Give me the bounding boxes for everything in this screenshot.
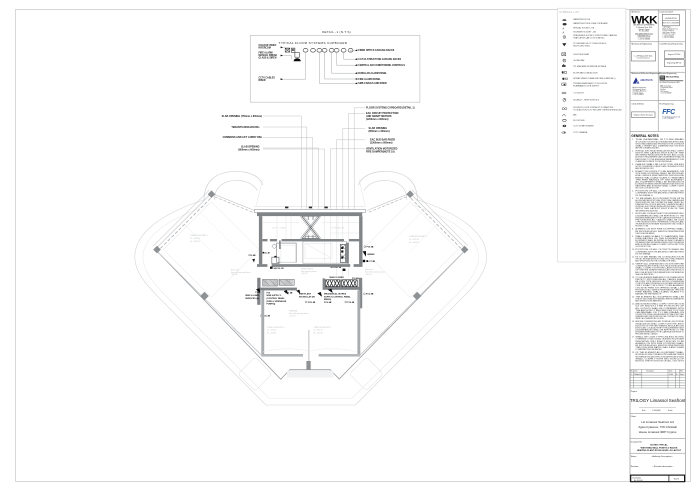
svg-text:CAT 6A STRUCTURE CABLING RACKS: CAT 6A STRUCTURE CABLING RACKS bbox=[358, 58, 401, 61]
svg-text:ROOMS LAY DB: ROOMS LAY DB bbox=[299, 295, 315, 298]
svg-text:RULTS URC GRILL: RULTS URC GRILL bbox=[573, 46, 591, 48]
svg-text:WATERTIGHT SUN CUBE CUPBOARD: WATERTIGHT SUN CUBE CUPBOARD bbox=[573, 22, 608, 25]
svg-text:A: A bbox=[563, 31, 565, 35]
svg-text:Architects: Architects bbox=[632, 11, 640, 14]
svg-text:CLARIFICATION PRIOR TO PROCEED: CLARIFICATION PRIOR TO PROCEEDING ALL bbox=[635, 160, 672, 163]
svg-text:Clerk of Works: Clerk of Works bbox=[632, 102, 644, 105]
svg-text:Mechanical Engineering: Mechanical Engineering bbox=[632, 43, 652, 46]
svg-text:L I F T L O B B Y: L I F T L O B B Y bbox=[272, 227, 287, 229]
svg-text:(800mm x 600mm): (800mm x 600mm) bbox=[238, 148, 259, 151]
svg-text:FL +141.85: FL +141.85 bbox=[267, 332, 276, 334]
svg-text:No: No bbox=[631, 371, 633, 373]
svg-text:1 BED ROOM UNIT 2: 1 BED ROOM UNIT 2 bbox=[314, 327, 331, 329]
svg-text:Size: Size bbox=[642, 410, 646, 412]
svg-text:WATERPROOF DB: WATERPROOF DB bbox=[573, 18, 591, 21]
svg-text:BEFORE COMMENCING ANY: BEFORE COMMENCING ANY bbox=[635, 147, 659, 150]
svg-text:(CONTROL PANEL: (CONTROL PANEL bbox=[267, 297, 286, 300]
svg-text:Mechanical & Electrical Engine: Mechanical & Electrical Engineering bbox=[632, 72, 660, 75]
svg-text:Agiou Fylaxeos, 7/W Christaki: Agiou Fylaxeos, 7/W Christaki bbox=[638, 425, 677, 429]
svg-text:J+A PHILIPPOU: J+A PHILIPPOU bbox=[665, 17, 678, 20]
svg-text:TPI SPACEME WORKRISE MODERE: TPI SPACEME WORKRISE MODERE bbox=[573, 65, 607, 68]
svg-text:ROUTES TO BE: ROUTES TO BE bbox=[635, 226, 649, 228]
svg-text:P10 4B: P10 4B bbox=[352, 277, 359, 280]
svg-text:1:100@A1: 1:100@A1 bbox=[652, 409, 661, 412]
svg-text:SHALL BE REPORTED: SHALL BE REPORTED bbox=[635, 273, 654, 276]
svg-text:Scale: Scale bbox=[669, 371, 673, 373]
svg-text:FLOOR SUB: FLOOR SUB bbox=[573, 120, 585, 122]
svg-text:MECHANICAL WORKS: MECHANICAL WORKS bbox=[324, 293, 347, 296]
svg-text:C O R R I D O R: C O R R I D O R bbox=[331, 227, 345, 229]
svg-text:GLASS & SIREN: GLASS & SIREN bbox=[259, 57, 277, 60]
svg-text:CL +141.50: CL +141.50 bbox=[267, 330, 276, 332]
svg-text:DETAIL -1 (N.T.S): DETAIL -1 (N.T.S) bbox=[322, 30, 351, 34]
svg-text:FCU 4B: FCU 4B bbox=[366, 293, 374, 296]
svg-text:FLAMMABLE DOOR SUPPLY: FLAMMABLE DOOR SUPPLY bbox=[573, 85, 600, 88]
svg-text:Lead Consultant: Lead Consultant bbox=[660, 11, 674, 14]
svg-text:FIX THE GENERAL IS: FIX THE GENERAL IS bbox=[635, 194, 653, 197]
svg-text:ECOPLEATS LINE-ACTION: ECOPLEATS LINE-ACTION bbox=[573, 71, 598, 74]
svg-text:INTERCOM: INTERCOM bbox=[259, 48, 271, 50]
svg-text:+141.50: +141.50 bbox=[231, 274, 238, 276]
svg-text:House Limassol 3087 Cyprus: House Limassol 3087 Cyprus bbox=[639, 430, 677, 434]
svg-text:P10 4B: P10 4B bbox=[367, 245, 374, 248]
svg-text:P.O. Box 50622: P.O. Box 50622 bbox=[639, 31, 649, 33]
svg-text:(850mm x 300mm): (850mm x 300mm) bbox=[369, 130, 390, 133]
svg-text:Limassol, Cyprus: Limassol, Cyprus bbox=[638, 29, 649, 31]
svg-text:Fire Engineering: Fire Engineering bbox=[660, 102, 674, 105]
svg-text:Limassol, Cyprus: Limassol, Cyprus bbox=[633, 92, 644, 94]
svg-text:SOUNDLY - HIGH SCHOOLS: SOUNDLY - HIGH SCHOOLS bbox=[573, 99, 599, 101]
svg-text:FL +141.85: FL +141.85 bbox=[314, 332, 323, 334]
svg-text:THROUGH FIRE RATED: THROUGH FIRE RATED bbox=[635, 232, 655, 235]
svg-text:1:100: 1:100 bbox=[669, 374, 673, 376]
svg-text:EL-41-104: EL-41-104 bbox=[634, 480, 642, 482]
svg-text:(1300mm x 800mm): (1300mm x 800mm) bbox=[370, 141, 393, 144]
svg-text:CL +141.50: CL +141.50 bbox=[409, 239, 419, 241]
svg-text:LH Limassol Seafront Ltd: LH Limassol Seafront Ltd bbox=[641, 420, 674, 424]
svg-text:Project:: Project: bbox=[631, 390, 638, 393]
svg-text:CENTRAL AIR CONDITIONING CONTR: CENTRAL AIR CONDITIONING CONTROLS bbox=[358, 64, 405, 67]
svg-text:WKK: WKK bbox=[631, 15, 658, 27]
svg-text:ARE INDICATIVE ONLY: ARE INDICATIVE ONLY bbox=[635, 167, 654, 170]
svg-text:Rev: Rev bbox=[680, 371, 683, 373]
svg-text:Drawing Title:: Drawing Title: bbox=[631, 440, 643, 443]
svg-text:SECTION 54 OF BS7671 THE: SECTION 54 OF BS7671 THE bbox=[635, 188, 659, 190]
svg-text:Scale: Scale bbox=[668, 410, 673, 412]
svg-text:CCTV DOME SCREEN: CCTV DOME SCREEN bbox=[573, 125, 594, 127]
svg-text:MSB SUPPLY 2: MSB SUPPLY 2 bbox=[267, 295, 283, 297]
svg-text:BURGLAR ALARM PANEL: BURGLAR ALARM PANEL bbox=[358, 72, 387, 75]
svg-text:P10 4B: P10 4B bbox=[286, 291, 293, 294]
svg-text:FIX THE GENERAL: FIX THE GENERAL bbox=[635, 252, 650, 255]
svg-text:TO INJECTION CCTV SECURITY SER: TO INJECTION CCTV SECURITY SERVICES MODU… bbox=[573, 109, 622, 111]
svg-text:FL +141.85: FL +141.85 bbox=[409, 242, 419, 244]
svg-text:AND SPECIFICATIONS THE CONTRAC: AND SPECIFICATIONS THE CONTRACTOR SHALL bbox=[635, 260, 676, 263]
svg-text:Revision:: Revision: bbox=[631, 466, 639, 468]
svg-text:1096 Nicosia, Cyprus: 1096 Nicosia, Cyprus bbox=[663, 34, 677, 36]
svg-text:FCU 4B: FCU 4B bbox=[308, 301, 316, 304]
svg-text:VERIFY ALL DIMENSIONS ON SITE: VERIFY ALL DIMENSIONS ON SITE bbox=[635, 317, 664, 320]
svg-text:LIGHT MODULAR: LIGHT MODULAR bbox=[573, 53, 589, 56]
svg-text:SD/COL FB: SD/COL FB bbox=[274, 268, 285, 270]
svg-text:(1200mm x 900mm): (1200mm x 900mm) bbox=[366, 118, 389, 121]
svg-text:1 BED ROOM UNIT 1: 1 BED ROOM UNIT 1 bbox=[267, 327, 284, 329]
svg-text:PROCEEDING ALL CABLES: PROCEEDING ALL CABLES bbox=[635, 333, 658, 336]
svg-text:+141.50: +141.50 bbox=[301, 273, 308, 275]
svg-text:f. +357 22 751046: f. +357 22 751046 bbox=[663, 37, 674, 39]
svg-text:FLOOR SYSTEMS CUPBOARD (DETAIL: FLOOR SYSTEMS CUPBOARD (DETAIL 1) bbox=[366, 107, 415, 110]
svg-text:AND INSTRUCTIONS EARTHING: AND INSTRUCTIONS EARTHING bbox=[635, 300, 662, 303]
svg-text:Lead Electrical Engineering: Lead Electrical Engineering bbox=[660, 43, 683, 46]
svg-text:MSB-LV RISER: MSB-LV RISER bbox=[330, 277, 345, 279]
svg-text:Status:: Status: bbox=[631, 455, 637, 458]
svg-text:SYMBOLS LIST: SYMBOLS LIST bbox=[559, 12, 579, 14]
svg-text:PUMPS)): PUMPS)) bbox=[267, 304, 276, 306]
svg-text:TENANTS MCBs/RCCBs: TENANTS MCBs/RCCBs bbox=[231, 126, 260, 129]
svg-text:RISER: RISER bbox=[259, 80, 266, 82]
svg-text:BMS/S): BMS/S) bbox=[324, 299, 331, 301]
svg-text:P10 4B: P10 4B bbox=[348, 301, 355, 304]
svg-text:TRILOGY Limassol Seafront: TRILOGY Limassol Seafront bbox=[630, 398, 686, 403]
svg-text:SERVICES (A): SERVICES (A) bbox=[245, 297, 259, 300]
svg-text:Client:: Client: bbox=[631, 415, 637, 418]
svg-text:THAT LATCH CAB CCTV (LINE RL): THAT LATCH CAB CCTV (LINE RL) bbox=[573, 37, 604, 40]
svg-text:CL +141.50: CL +141.50 bbox=[314, 330, 323, 332]
svg-text:+141.50: +141.50 bbox=[365, 274, 372, 276]
svg-text:MSB PLANT: MSB PLANT bbox=[299, 293, 312, 296]
svg-text:FCU 4B: FCU 4B bbox=[324, 301, 332, 304]
svg-text:FFC: FFC bbox=[662, 109, 676, 116]
svg-text:BMS/M: BMS/M bbox=[368, 254, 375, 256]
svg-text:SOUNDER SOCKET - DB: SOUNDER SOCKET - DB bbox=[573, 32, 596, 34]
svg-text:SUPPLY (CONTROL PANEL: SUPPLY (CONTROL PANEL bbox=[324, 295, 351, 298]
svg-text:P10 4B: P10 4B bbox=[249, 254, 256, 257]
svg-text:info@wkk.com.cy: info@wkk.com.cy bbox=[638, 35, 651, 37]
svg-text:MAINTAIN THE FIRE RATING OF: MAINTAIN THE FIRE RATING OF bbox=[635, 293, 661, 296]
svg-text:FIRE ALARM PANEL: FIRE ALARM PANEL bbox=[358, 78, 381, 81]
svg-text:TO MAINTAIN THE FIRE RATING: TO MAINTAIN THE FIRE RATING bbox=[635, 348, 662, 351]
svg-text:BS7671 THE POSITION OF ALL OUT: BS7671 THE POSITION OF ALL OUTLETS bbox=[635, 359, 685, 362]
svg-text:GLOBE WAY: GLOBE WAY bbox=[573, 59, 585, 62]
svg-text:COMMONS AND LIFT LOBBY DBs: COMMONS AND LIFT LOBBY DBs bbox=[223, 136, 263, 139]
svg-text:NOTES TYPICAL: NOTES TYPICAL bbox=[650, 444, 668, 447]
svg-text:WEST/SEA WALL POINTS & RACKS: WEST/SEA WALL POINTS & RACKS bbox=[641, 446, 678, 449]
svg-text:SLAB OPENING (750mm x 800mm): SLAB OPENING (750mm x 800mm) bbox=[222, 115, 263, 118]
svg-text:GENERAL NOTES: GENERAL NOTES bbox=[631, 134, 658, 138]
svg-text:CT OUTLET: CT OUTLET bbox=[573, 92, 585, 94]
svg-text:CCTV CAMERA: CCTV CAMERA bbox=[573, 131, 588, 134]
svg-text:54 OF BS7671 THE: 54 OF BS7671 THE bbox=[635, 246, 651, 248]
svg-text:SMB CABLES AND RISER: SMB CABLES AND RISER bbox=[358, 82, 387, 85]
svg-text:AMATHUS: AMATHUS bbox=[640, 79, 653, 82]
svg-text:FL +141.85: FL +141.85 bbox=[190, 241, 200, 243]
svg-text:ICT 4B: ICT 4B bbox=[369, 260, 376, 263]
svg-text:+141.50: +141.50 bbox=[289, 315, 296, 317]
svg-text:2 BEDROOM UNIT 2: 2 BEDROOM UNIT 2 bbox=[409, 236, 427, 238]
svg-text:CL +141.50: CL +141.50 bbox=[190, 238, 200, 240]
svg-text:HEATING PLANT ROOM LEVEL 41 L: HEATING PLANT ROOM LEVEL 41 LAYOUT bbox=[637, 449, 682, 452]
svg-text:IEE WIRING REGULATIONS: IEE WIRING REGULATIONS bbox=[635, 209, 658, 212]
svg-text:- Revision description -: - Revision description - bbox=[652, 465, 673, 468]
svg-text:MSB S & BMS: MSB S & BMS bbox=[245, 295, 259, 297]
svg-text:COL 4B: COL 4B bbox=[264, 252, 271, 255]
svg-text:- Authority Description -: - Authority Description - bbox=[651, 455, 673, 458]
svg-text:B: B bbox=[676, 374, 677, 376]
svg-text:FIRE DAMPER(NOTE 10): FIRE DAMPER(NOTE 10) bbox=[366, 150, 395, 153]
svg-text:(FIRE & SPRINKLER: (FIRE & SPRINKLER bbox=[267, 301, 287, 303]
svg-text:SPECIAL SOCKET - DB: SPECIAL SOCKET - DB bbox=[573, 27, 595, 30]
svg-text:2 BEDROOM UNIT 1: 2 BEDROOM UNIT 1 bbox=[190, 235, 208, 237]
svg-text:FIBER OPTICS CABLING RACKS: FIBER OPTICS CABLING RACKS bbox=[358, 49, 394, 52]
svg-text:1087 Nicosia: 1087 Nicosia bbox=[660, 91, 668, 93]
svg-text:SPIRAL SPEED CLEAN-DIN FIRE (L: SPIRAL SPEED CLEAN-DIN FIRE (LINER MILL) bbox=[573, 77, 616, 80]
svg-text:A: A bbox=[563, 26, 565, 30]
svg-text:TYPICAL FLOOR SYSTEMS CUPBOARD: TYPICAL FLOOR SYSTEMS CUPBOARD bbox=[279, 41, 348, 45]
svg-text:Rev B: Rev B bbox=[674, 478, 680, 480]
svg-text:Sergiou & Fyrou Surveyors: Sergiou & Fyrou Surveyors bbox=[634, 115, 653, 117]
svg-text:Electrical Engineering: Electrical Engineering bbox=[660, 72, 677, 75]
